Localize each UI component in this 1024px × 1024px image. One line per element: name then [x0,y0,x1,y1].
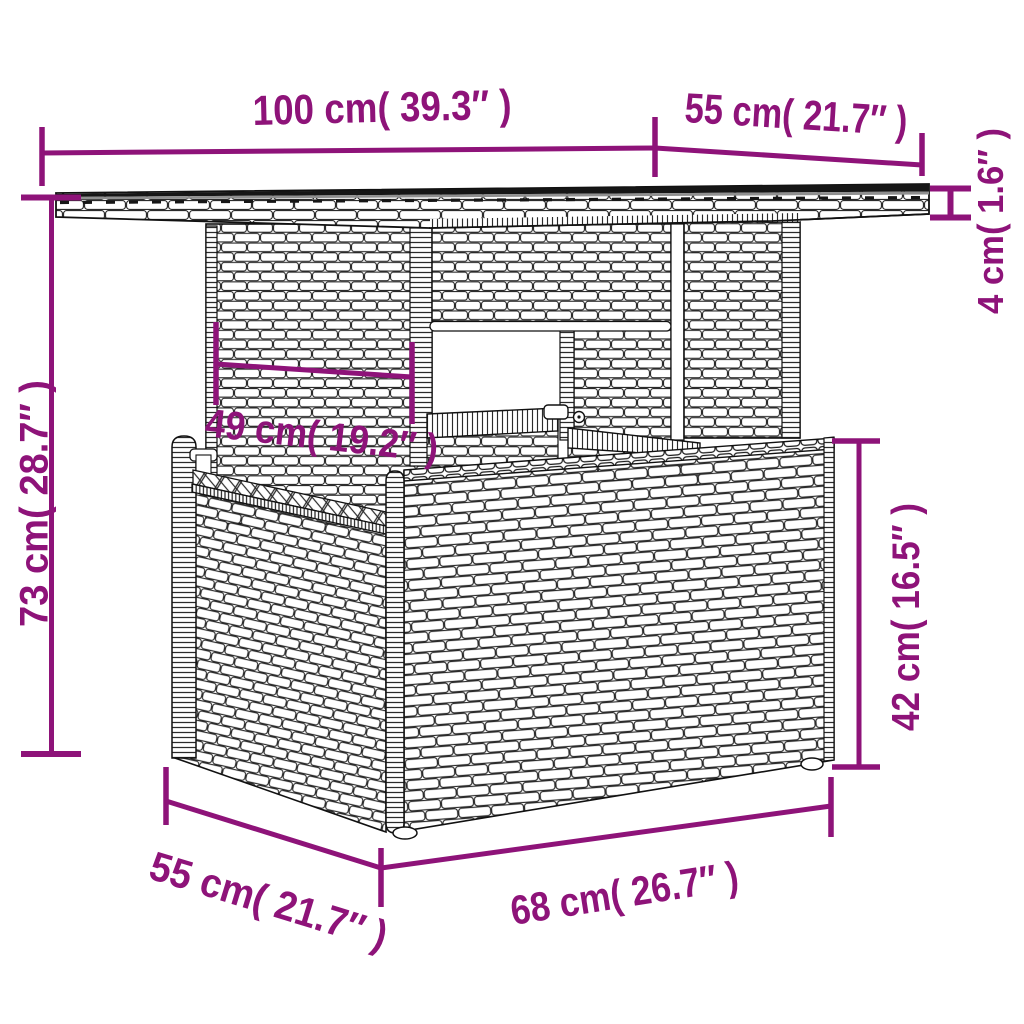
svg-text:73 cm( 28.7″ ): 73 cm( 28.7″ ) [13,380,57,627]
svg-text:100 cm( 39.3″ ): 100 cm( 39.3″ ) [252,81,512,134]
svg-text:4 cm( 1.6″ ): 4 cm( 1.6″ ) [970,128,1011,314]
svg-text:42 cm( 16.5″ ): 42 cm( 16.5″ ) [885,503,928,731]
